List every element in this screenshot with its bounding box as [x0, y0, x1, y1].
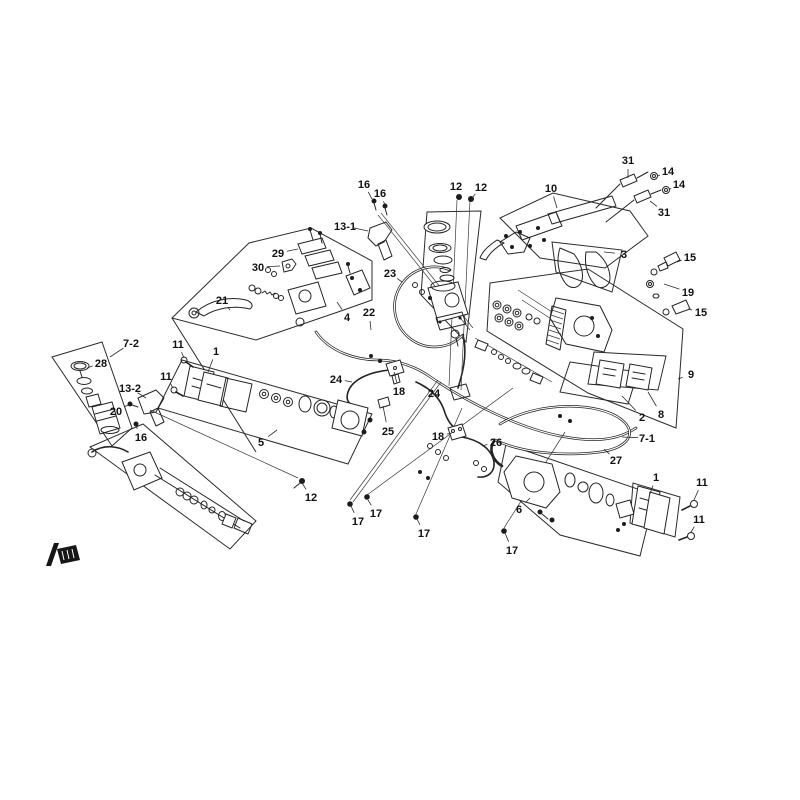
part-callout-18-35: 18 — [393, 386, 405, 398]
part-callout-25-37: 25 — [382, 426, 394, 438]
bolt-17 — [501, 528, 507, 534]
callout-leader-11-48 — [691, 527, 694, 532]
tie-line-c — [416, 408, 462, 514]
callout-leader-17-41 — [351, 506, 354, 513]
callout-leader-12-40 — [302, 483, 306, 489]
caliper-body — [550, 298, 612, 352]
brake-rod-a — [350, 380, 438, 500]
part-callout-29-14: 29 — [272, 248, 284, 260]
cable-31a — [596, 184, 620, 208]
bolt-shaft — [542, 514, 548, 519]
part-callout-31-6: 31 — [622, 155, 634, 167]
brake-rod-a2 — [353, 382, 441, 502]
mount-bolt-11 — [691, 501, 698, 508]
seal — [522, 368, 530, 374]
callout-leader-8-21 — [648, 392, 656, 406]
part-callout-14-7: 14 — [662, 166, 675, 178]
rods-and-lines — [150, 200, 565, 528]
callout-leader-12-4 — [472, 194, 475, 198]
fitting-cup — [530, 373, 543, 384]
callout-leader-24-34 — [345, 381, 352, 382]
bolt — [428, 296, 432, 300]
cable-adjuster-31b — [634, 190, 651, 203]
washer-19 — [647, 281, 654, 288]
bracket-hole — [286, 264, 290, 268]
housing-joint — [556, 212, 560, 222]
right-caliper-assembly-6 — [504, 456, 698, 540]
callout-leader-17-43 — [417, 519, 420, 525]
part-callout-5-33: 5 — [258, 437, 264, 449]
part-callout-3-10: 3 — [621, 249, 627, 261]
bracket-3-lobe-a — [558, 248, 583, 287]
washer — [428, 444, 433, 449]
callout-leader-17-42 — [368, 500, 371, 505]
part-callout-11-48: 11 — [693, 514, 705, 526]
part-callout-11-29: 11 — [160, 371, 172, 383]
washer — [444, 456, 449, 461]
rear-master-cylinder-assembly — [88, 449, 252, 534]
bleeder-cone — [658, 262, 668, 271]
washer — [249, 285, 255, 291]
nut — [426, 476, 430, 480]
clamp-plate — [346, 270, 370, 295]
logo-slash — [46, 543, 59, 566]
callout-leader-4-17 — [337, 302, 342, 310]
callout-leader-9-20 — [678, 377, 683, 379]
part-callout-16-1: 16 — [374, 188, 386, 200]
bleeder-15b — [672, 300, 690, 314]
washer — [506, 359, 511, 364]
part-callout-9-20: 9 — [688, 369, 694, 381]
mc-body-4 — [288, 282, 326, 314]
part-callout-17-43: 17 — [418, 528, 430, 540]
bolt — [368, 418, 373, 423]
nut-14b — [663, 187, 670, 194]
bolt — [362, 430, 367, 435]
washer — [492, 350, 497, 355]
tie-line-pedal — [150, 410, 298, 478]
part-callout-10-5: 10 — [545, 183, 557, 195]
mc-body — [122, 452, 162, 490]
washer — [274, 294, 279, 299]
callout-leader-19-12 — [664, 284, 679, 289]
nut-14b-hole — [665, 189, 668, 192]
part-callout-1-46: 1 — [653, 472, 659, 484]
callout-leader-23-19 — [397, 278, 402, 282]
callout-leader-25-37 — [383, 406, 386, 422]
part-callout-17-42: 17 — [370, 508, 382, 520]
callout-leader-29-14 — [287, 249, 298, 251]
part-callout-12-40: 12 — [305, 492, 317, 504]
part-callout-7-1-23: 7-1 — [639, 433, 655, 445]
o-ring — [299, 396, 311, 412]
clamp-25 — [378, 397, 390, 408]
brand-logo-mark — [46, 543, 80, 566]
cover-screw — [310, 230, 313, 240]
washer — [420, 290, 425, 295]
seal — [513, 363, 521, 369]
part-callout-26-39: 26 — [490, 437, 502, 449]
mount-bolt-11 — [688, 533, 695, 540]
clamp-bolt — [358, 288, 362, 292]
bolt — [528, 244, 532, 248]
mc-body — [428, 282, 468, 322]
part-callout-27-24: 27 — [610, 455, 622, 467]
parts-diagram: 161613-112121031141431315191529302142223… — [0, 0, 800, 800]
stem — [80, 371, 82, 377]
center-master-cylinder-assembly — [413, 194, 475, 400]
left-caliper-assembly — [171, 357, 373, 436]
part-callout-12-4: 12 — [475, 182, 487, 194]
cable-adjuster-31a — [620, 174, 637, 187]
callout-leader-7-2-25 — [110, 348, 124, 357]
washer — [413, 283, 418, 288]
part-callout-28-26: 28 — [95, 358, 107, 370]
part-callout-8-21: 8 — [658, 409, 664, 421]
part-callout-24-34: 24 — [330, 374, 343, 386]
bolt-shaft — [132, 405, 138, 407]
callout-leader-5-33 — [268, 430, 277, 437]
cable-end-a — [637, 172, 648, 178]
nut — [369, 354, 373, 358]
cap-plate-inner — [433, 245, 447, 251]
bolt-shaft — [374, 203, 376, 210]
callout-leader-22-18 — [370, 321, 371, 330]
washer-19-hole — [649, 283, 652, 286]
callout-leader-11-47 — [694, 490, 698, 500]
bolt — [542, 238, 546, 242]
part-callout-22-18: 22 — [363, 307, 375, 319]
part-callout-7-2-25: 7-2 — [123, 338, 139, 350]
bolt-17 — [413, 514, 419, 520]
bolt — [510, 245, 514, 249]
rear-mc-hose — [92, 447, 128, 452]
bolt-17 — [347, 501, 353, 507]
cover-screw-head — [308, 227, 312, 231]
bolt-20 — [128, 402, 133, 407]
part-callout-13-2-30: 13-2 — [119, 383, 141, 395]
washer — [653, 294, 659, 298]
nut-14a — [651, 173, 658, 180]
spring — [262, 291, 275, 295]
part-callout-1-28: 1 — [213, 346, 219, 358]
callout-leader-31-9 — [650, 201, 657, 206]
fitting-cylinder — [475, 340, 488, 351]
callout-leader-7-1-23 — [622, 437, 638, 438]
callout-leader-16-0 — [368, 192, 372, 199]
part-callout-6-45: 6 — [516, 504, 522, 516]
washer — [436, 450, 441, 455]
callout-leader-14-7 — [658, 175, 660, 176]
part-callout-4-17: 4 — [344, 312, 351, 324]
lever-pivot-hole — [192, 311, 196, 315]
seal — [606, 494, 614, 506]
part-callout-16-32: 16 — [135, 432, 147, 444]
handlebar-lever-assembly — [480, 172, 670, 288]
caliper-body — [504, 456, 560, 508]
part-callout-18-38: 18 — [432, 431, 444, 443]
bolt — [518, 230, 522, 234]
part-callout-20-31: 20 — [110, 406, 122, 418]
part-callout-11-27: 11 — [172, 339, 184, 351]
bolt — [616, 528, 620, 532]
part-callout-23-19: 23 — [384, 268, 396, 280]
bolt-shaft — [682, 506, 690, 510]
spring-coil — [190, 496, 198, 504]
washer — [499, 355, 504, 360]
bolt — [596, 334, 600, 338]
washer — [474, 461, 479, 466]
brake-pad — [626, 364, 652, 390]
part-callout-19-12: 19 — [682, 287, 694, 299]
bolt — [504, 234, 508, 238]
clamp-bolt — [350, 276, 354, 280]
washer — [663, 309, 669, 315]
piston-cup — [589, 483, 603, 503]
hose-fitting-string — [475, 338, 552, 384]
bolt — [550, 518, 555, 523]
part-callout-14-8: 14 — [673, 179, 686, 191]
part-callout-11-47: 11 — [696, 477, 708, 489]
callout-leader-14-8 — [670, 188, 671, 189]
bolt-17 — [364, 494, 370, 500]
boot — [222, 514, 236, 528]
bolt-shaft — [679, 537, 687, 540]
callout-leader-17-44 — [505, 533, 509, 542]
hose-24-left — [347, 370, 390, 406]
part-callout-21-16: 21 — [216, 295, 228, 307]
part-callout-12-3: 12 — [450, 181, 462, 193]
part-callout-15-11: 15 — [684, 252, 696, 264]
washer — [255, 288, 261, 294]
part-callout-17-44: 17 — [506, 545, 518, 557]
nut — [378, 359, 382, 363]
banjo-fitting — [88, 449, 96, 457]
part-callout-24-36: 24 — [428, 388, 441, 400]
piston — [314, 400, 330, 416]
diaphragm — [434, 256, 452, 264]
bolt-16 — [134, 422, 139, 427]
nut-14a-hole — [653, 175, 656, 178]
bolt-shaft — [385, 208, 387, 215]
callout-leader-1-28 — [208, 359, 213, 372]
bolt-shaft — [176, 392, 183, 396]
front-mc-panel — [172, 228, 372, 340]
washer — [272, 272, 277, 277]
callout-leader-3-10 — [604, 252, 615, 253]
bolt — [536, 226, 540, 230]
parts-diagram-page: 161613-112121031141431315191529302142223… — [0, 0, 800, 800]
callout-leader-30-15 — [267, 266, 280, 267]
washer — [279, 296, 284, 301]
seal — [565, 473, 575, 487]
washer — [482, 467, 487, 472]
part-callout-13-1-2: 13-1 — [334, 221, 356, 233]
part-callout-2-22: 2 — [639, 412, 645, 424]
cover-screw-head — [318, 231, 322, 235]
cable-end-b — [651, 190, 661, 194]
housing-10 — [516, 212, 562, 240]
nut — [558, 414, 562, 418]
washer — [266, 268, 271, 273]
tee-junction-18 — [386, 360, 404, 376]
part-callout-15-13: 15 — [695, 307, 707, 319]
nut — [418, 470, 422, 474]
bracket-30 — [282, 259, 296, 272]
part-callout-30-15: 30 — [252, 262, 264, 274]
bolt — [590, 316, 594, 320]
front-master-cylinder-assembly — [189, 227, 370, 326]
bolt-shaft — [294, 483, 300, 488]
clamp-screw — [346, 262, 350, 266]
piston-inner — [317, 403, 327, 413]
clamp-screw-shaft — [348, 266, 350, 273]
plate — [77, 378, 91, 385]
ring — [82, 388, 93, 394]
piston — [578, 482, 588, 492]
washer-rows — [493, 301, 540, 330]
bracket-13-1 — [368, 222, 392, 246]
float — [440, 275, 454, 281]
clamp-bolt — [459, 317, 462, 320]
part-callout-17-41: 17 — [352, 516, 364, 528]
part-callout-16-0: 16 — [358, 179, 370, 191]
clamp-bolt — [439, 321, 442, 324]
pushrod-2 — [160, 468, 244, 521]
bracket-13-1-arm — [378, 240, 392, 260]
part-callout-31-9: 31 — [658, 207, 670, 219]
nut — [568, 419, 572, 423]
callout-leader-10-5 — [554, 197, 557, 208]
brake-pad — [596, 360, 624, 388]
bolt — [622, 522, 626, 526]
washer-19 — [651, 269, 657, 275]
